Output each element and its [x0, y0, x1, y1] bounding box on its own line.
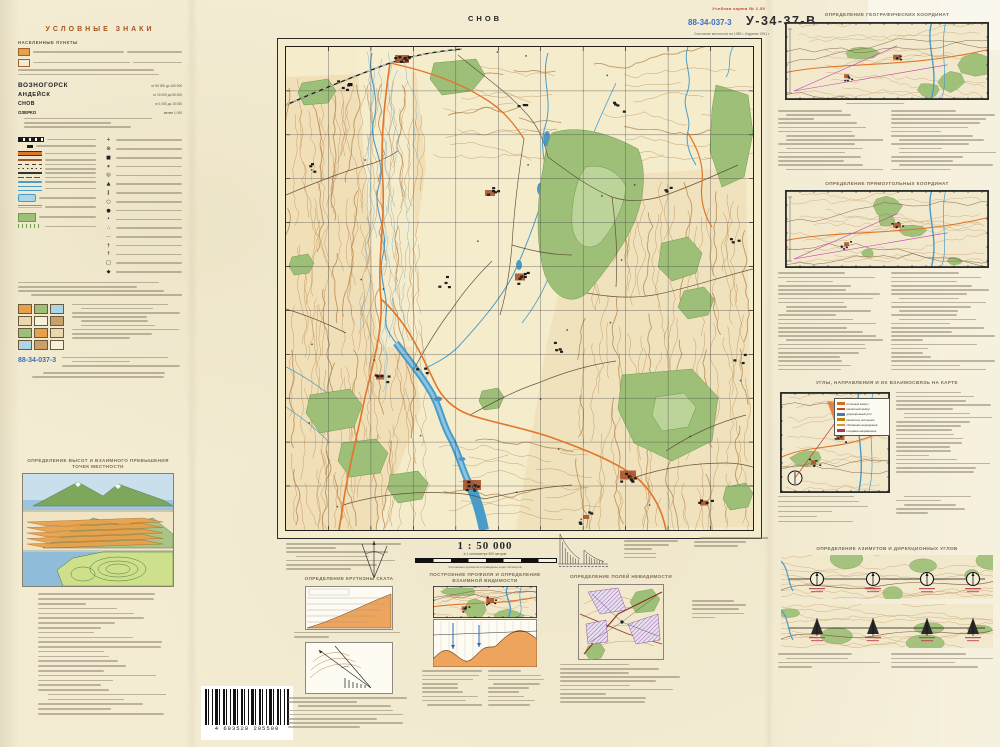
slope-section: ОПРЕДЕЛЕНИЕ КРУТИЗНЫ СКАТА: [286, 576, 412, 734]
barcode-bars: [205, 689, 289, 725]
slope-title: ОПРЕДЕЛЕНИЕ КРУТИЗНЫ СКАТА: [286, 576, 412, 582]
legend-row: ↑: [104, 251, 182, 257]
legend-note: [18, 69, 182, 77]
heights-panel: ОПРЕДЕЛЕНИЕ ВЫСОТ И ВЗАИМНОГО ПРЕВЫШЕНИЯ…: [20, 458, 176, 718]
legend-panel: УСЛОВНЫЕ ЗНАКИ НАСЕЛЕННЫЕ ПУНКТЫ ВОЗНОГО…: [18, 26, 182, 450]
margin-note-1: [624, 540, 682, 561]
canal-icon: [18, 186, 42, 191]
spring-icon: ○: [104, 199, 113, 205]
legend-symbols-right: +⊕■✶◎▲∥○●•∴⋯†↑□◆: [104, 134, 182, 278]
town-typography-samples: ВОЗНОГОРСКот 50 000 до 100 000 АНДЕЙСКот…: [18, 82, 182, 115]
main-map: [277, 38, 762, 539]
heights-title: ОПРЕДЕЛЕНИЕ ВЫСОТ И ВЗАИМНОГО ПРЕВЫШЕНИЯ…: [20, 458, 176, 469]
legend-title: УСЛОВНЫЕ ЗНАКИ: [18, 26, 182, 33]
meadow-icon: [18, 224, 42, 228]
church-icon: +: [104, 137, 113, 143]
radio-mast-icon: ↑: [104, 251, 113, 257]
right-panel: ОПРЕДЕЛЕНИЕ ГЕОГРАФИЧЕСКИХ КООРДИНАТ ОПР…: [778, 12, 996, 670]
legend-stamp-row: 88-34-037-3: [18, 357, 182, 370]
paper-fold: [764, 0, 774, 747]
angles-legend-item: магнитное склонение: [837, 418, 887, 422]
bottom-extra-notes: [692, 600, 764, 621]
legend-row: [18, 172, 96, 174]
invisibility-text: [560, 664, 682, 706]
angles-legend-item: магнитный азимут: [837, 407, 887, 411]
legend-row: ✶: [104, 164, 182, 170]
profile-chart: [433, 619, 537, 667]
settlement-sample-row: [18, 59, 182, 67]
legend-row: ◆: [104, 269, 182, 275]
legend-row: [18, 164, 96, 166]
legend-row: [18, 224, 96, 228]
angles-legend-item: сближение меридианов: [837, 423, 887, 427]
legend-row: [18, 205, 96, 210]
legend-row: [18, 213, 96, 222]
rect-title: ОПРЕДЕЛЕНИЕ ПРЯМОУГОЛЬНЫХ КООРДИНАТ: [778, 181, 996, 187]
legend-row: +: [104, 137, 182, 143]
elevation-point-icon: •: [104, 216, 113, 222]
geo-text-left: [778, 110, 883, 173]
formula-lines: [778, 496, 890, 526]
silo-icon: ◆: [104, 269, 113, 275]
path-icon: [18, 168, 42, 169]
angles-legend: истинный азимутмагнитный азимутдирекцион…: [834, 398, 890, 437]
angles-title: УГЛЫ, НАПРАВЛЕНИЯ И ИХ ВЗАИМОСВЯЗЬ НА КА…: [778, 380, 996, 386]
invisibility-section: ОПРЕДЕЛЕНИЕ ПОЛЕЙ НЕВИДИМОСТИ: [556, 574, 686, 706]
scale-value: 1 : 50 000: [415, 540, 555, 552]
legend-row: [18, 145, 96, 149]
main-map-canvas: [286, 47, 753, 530]
slope-text: [288, 697, 410, 731]
legend-stamp: 88-34-037-3: [18, 357, 56, 364]
power-line-icon: [18, 172, 42, 173]
monument-icon: ▲: [104, 181, 113, 187]
town-sample: ОЗЕРКО: [18, 110, 36, 115]
village-block-icon: [18, 59, 30, 67]
azimuth-note-left: [778, 653, 883, 670]
legend-row: [18, 168, 96, 170]
geo-caption: [838, 103, 936, 107]
bridge-icon: ∥: [104, 190, 113, 196]
azimuth-strip-1: [781, 555, 993, 599]
rect-text-left: [778, 272, 883, 373]
settlement-sample-row: [18, 48, 182, 56]
legend-row: [18, 151, 96, 156]
legend-row: ⋯: [104, 234, 182, 240]
heights-text: [38, 593, 166, 717]
angles-formulas: [778, 496, 890, 526]
settlements-title: НАСЕЛЕННЫЕ ПУНКТЫ: [18, 40, 182, 45]
legend-row: □: [104, 260, 182, 266]
angles-figure: истинный азимутмагнитный азимутдирекцион…: [778, 390, 996, 540]
map-frame: [285, 46, 754, 531]
forest-icon: [18, 213, 36, 222]
factory-icon: ■: [104, 155, 113, 161]
paper-fold: [186, 0, 198, 747]
dirt-road-icon: [18, 164, 42, 166]
soil-notes: [72, 304, 182, 350]
azimuth-note-right: [891, 653, 996, 670]
legend-row: ⊕: [104, 146, 182, 152]
profile-title: ПОСТРОЕНИЕ ПРОФИЛЯ И ОПРЕДЕЛЕНИЕ ВЗАИМНО…: [422, 572, 548, 583]
scale-block: 1 : 50 000 в 1 сантиметре 500 метров Спл…: [415, 540, 555, 569]
legend-row: [18, 177, 96, 179]
barcode-digits: 4 603528 205500: [205, 725, 289, 732]
cemetery-icon: †: [104, 243, 113, 249]
legend-row: †: [104, 243, 182, 249]
map-title: СНОВ: [468, 14, 502, 23]
header-stamp: 88-34-037-3: [688, 18, 732, 27]
school-icon: □: [104, 260, 113, 266]
profile-text-left: [422, 670, 482, 708]
station-icon: [27, 145, 33, 149]
legend-row: •: [104, 216, 182, 222]
geo-coordinates-inset: [785, 22, 989, 100]
margin-note-2: [694, 537, 768, 550]
legend-row: [18, 159, 96, 161]
stamp-side-note: [62, 357, 182, 370]
legend-row: [18, 186, 96, 191]
legend-row: ∥: [104, 190, 182, 196]
legend-row: ◎: [104, 172, 182, 178]
invisibility-map: [578, 584, 664, 660]
geo-title: ОПРЕДЕЛЕНИЕ ГЕОГРАФИЧЕСКИХ КООРДИНАТ: [778, 12, 996, 18]
chapel-icon: ⊕: [104, 146, 113, 152]
legend-symbols-left: [18, 134, 96, 278]
soil-swatch-grid: [18, 304, 64, 350]
scale-subnote: в 1 сантиметре 500 метров: [415, 552, 555, 556]
slope-diagram-1: [305, 586, 393, 630]
heights-illustration: [22, 473, 174, 587]
legend-row: ●: [104, 208, 182, 214]
town-sample: ВОЗНОГОРСК: [18, 82, 68, 89]
slope-caption-1: [294, 632, 404, 640]
angles-legend-item: поправка направления: [837, 429, 887, 433]
swamp-icon: [18, 205, 42, 210]
legend-symbol-columns: +⊕■✶◎▲∥○●•∴⋯†↑□◆: [18, 134, 182, 278]
well-icon: ●: [104, 208, 113, 214]
river-icon: [18, 181, 42, 183]
legend-row: ■: [104, 155, 182, 161]
legend-soil-diagrams: [18, 304, 182, 350]
windmill-icon: ✶: [104, 164, 113, 170]
legend-row: ∴: [104, 225, 182, 231]
lake-icon: [18, 194, 36, 202]
profile-map-strip: [433, 586, 537, 618]
barcode: 4 603528 205500: [201, 686, 293, 740]
contour-note: Сплошные горизонтали проведены через 10 …: [415, 565, 555, 569]
angles-legend-item: дирекционный угол: [837, 412, 887, 416]
legend-row: [18, 194, 96, 202]
geo-text-right: [891, 110, 996, 173]
town-block-icon: [18, 48, 30, 56]
rect-coordinates-inset: [785, 190, 989, 268]
slope-scale-graph: [556, 528, 610, 568]
improved-road-icon: [18, 159, 42, 161]
azimuth-strip-2: [781, 604, 993, 648]
angles-text: [896, 392, 994, 476]
rect-text-right: [891, 272, 996, 373]
legend-row: ▲: [104, 181, 182, 187]
angles-legend-item: истинный азимут: [837, 402, 887, 406]
legend-row: [18, 137, 96, 142]
railway-icon: [18, 137, 44, 142]
sand-icon: ⋯: [104, 234, 113, 240]
slope-diagram-2: [305, 642, 393, 694]
highway-icon: [18, 151, 42, 156]
town-sample: СНОВ: [18, 101, 35, 107]
water-tower-icon: ◎: [104, 172, 113, 178]
declination-diagram: [352, 538, 396, 580]
scale-bar: [415, 558, 557, 563]
profile-section: ПОСТРОЕНИЕ ПРОФИЛЯ И ОПРЕДЕЛЕНИЕ ВЗАИМНО…: [422, 572, 548, 708]
settlement-type-notes: [24, 118, 176, 131]
training-label: Учебная карта № 1-50: [712, 6, 765, 11]
profile-text-right: [488, 670, 548, 708]
pipeline-icon: [18, 177, 42, 178]
angles-text-2: [896, 496, 994, 517]
town-sample: АНДЕЙСК: [18, 92, 50, 98]
legend-footer-note: [32, 372, 168, 380]
legend-row: ○: [104, 199, 182, 205]
legend-row: [18, 181, 96, 183]
shrub-icon: ∴: [104, 225, 113, 231]
azimuth-title: ОПРЕДЕЛЕНИЕ АЗИМУТОВ И ДИРЕКЦИОННЫХ УГЛО…: [778, 546, 996, 552]
invisibility-title: ОПРЕДЕЛЕНИЕ ПОЛЕЙ НЕВИДИМОСТИ: [556, 574, 686, 580]
legend-numbered-notes: [18, 282, 182, 299]
map-sheet: УСЛОВНЫЕ ЗНАКИ НАСЕЛЕННЫЕ ПУНКТЫ ВОЗНОГО…: [0, 0, 1000, 747]
